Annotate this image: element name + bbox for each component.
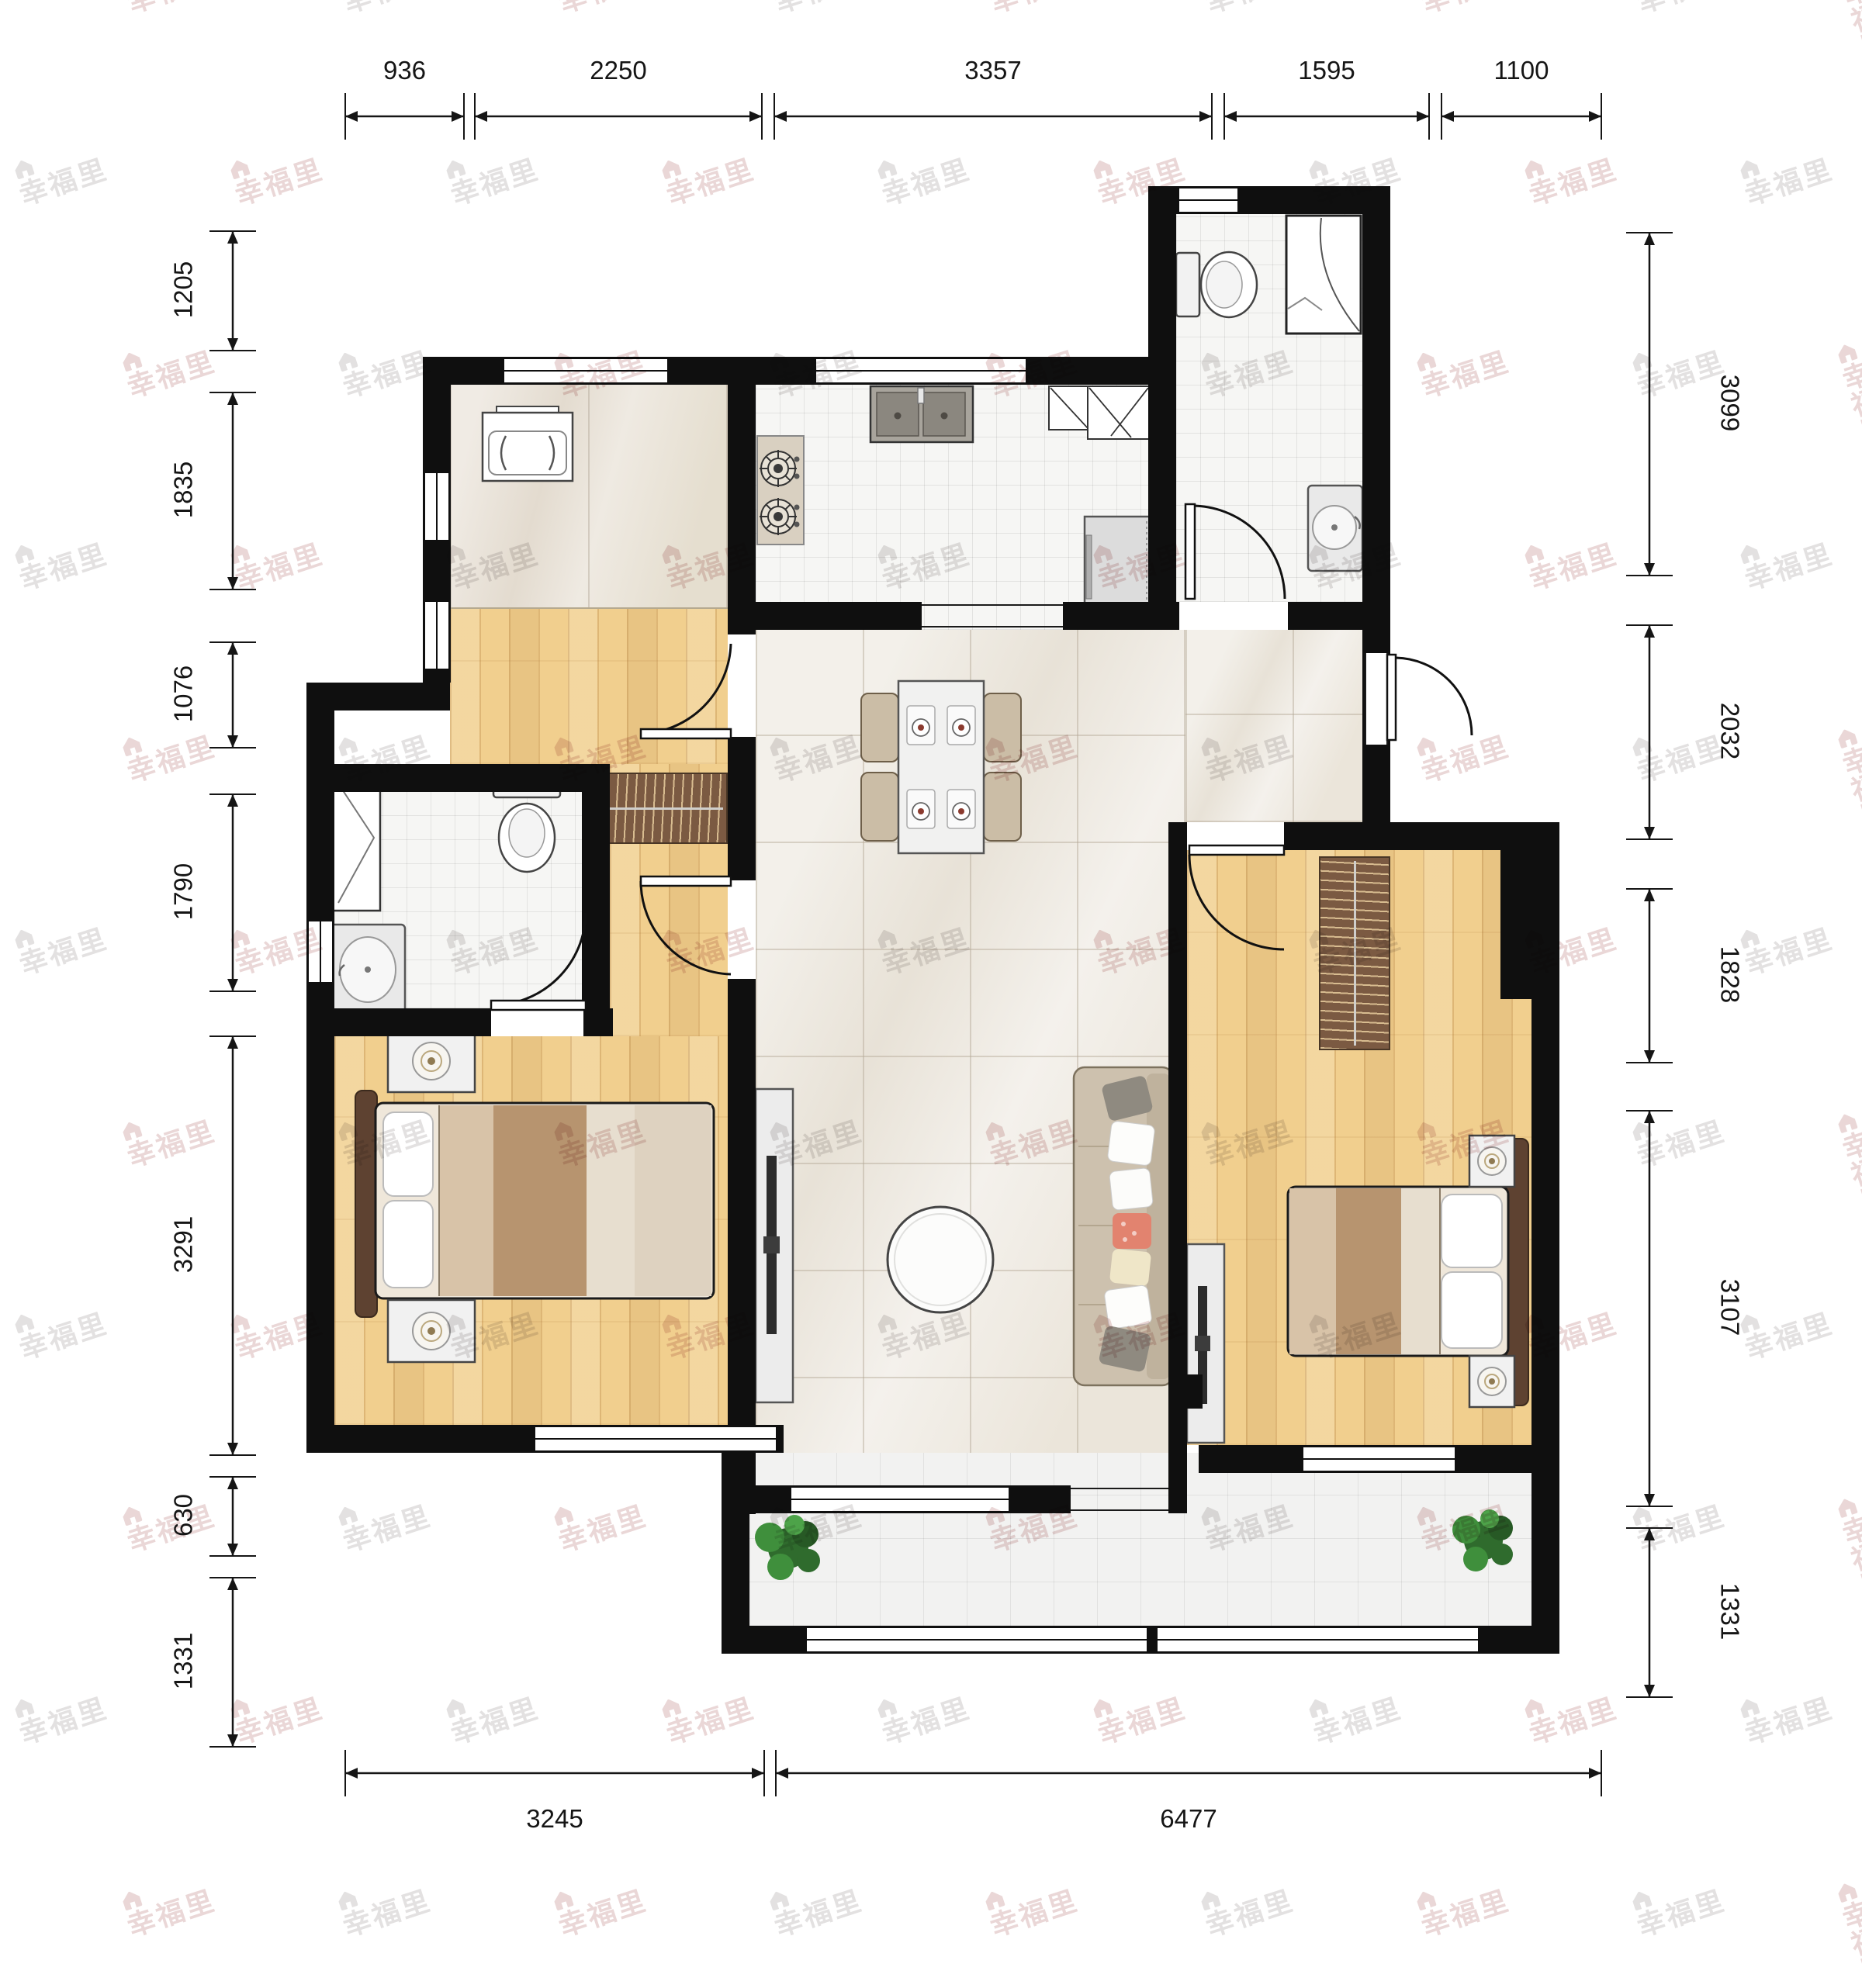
dimension-line	[1623, 886, 1676, 1066]
dimension-label: 3107	[1718, 1246, 1743, 1370]
watermark: 幸福里	[549, 1865, 651, 1941]
dimension-label: 1331	[1718, 1550, 1743, 1674]
watermark-text: 幸福里	[1634, 1886, 1729, 1941]
dimension-line	[1623, 230, 1676, 579]
dimension-label: 630	[171, 1454, 196, 1578]
watermark: 幸福里	[1196, 1865, 1298, 1941]
dimension-line	[342, 1747, 767, 1800]
dimension-line	[206, 228, 259, 354]
dimension-line	[1221, 90, 1432, 143]
watermark: 幸福里	[764, 1865, 867, 1941]
watermark: 幸福里	[980, 1865, 1082, 1941]
dimension-label: 1205	[171, 228, 196, 352]
floorplan-page: { "watermark": { "text": "幸福里", "logo_ic…	[0, 0, 1862, 1862]
dimension-label: 1100	[1459, 57, 1583, 83]
watermark-text: 幸福里	[124, 1886, 219, 1941]
dimension-label: 1595	[1265, 57, 1389, 83]
watermark-text: 幸福里	[771, 1886, 866, 1941]
watermark: 幸福里	[117, 1865, 220, 1941]
watermark-text: 幸福里	[1203, 1886, 1297, 1941]
watermark-text: 幸福里	[1418, 1886, 1513, 1941]
house-logo-icon	[1627, 1885, 1656, 1914]
house-logo-icon	[980, 1885, 1009, 1914]
watermark-text: 幸福里	[1840, 1897, 1862, 1986]
dimension-label: 1790	[171, 830, 196, 954]
dimension-line	[206, 791, 259, 994]
dimension-line	[1438, 90, 1604, 143]
dimension-line	[1623, 622, 1676, 842]
watermark: 幸福里	[1833, 1875, 1862, 1986]
house-logo-icon	[1411, 1885, 1441, 1914]
watermark: 幸福里	[333, 1865, 435, 1941]
watermark: 幸福里	[1627, 1865, 1729, 1941]
dimension-line	[1623, 1108, 1676, 1509]
house-logo-icon	[333, 1885, 362, 1914]
dimension-label: 1828	[1718, 913, 1743, 1037]
watermark: 幸福里	[0, 1865, 3, 1941]
dimension-label: 6477	[1127, 1806, 1251, 1831]
dimension-label: 3099	[1718, 341, 1743, 465]
dimension-line	[771, 90, 1215, 143]
dimension-line	[1623, 1525, 1676, 1700]
dimension-line	[206, 1033, 259, 1458]
dimension-label: 2250	[556, 57, 680, 83]
dimension-line	[206, 389, 259, 593]
dimension-line	[206, 1575, 259, 1750]
dimension-label: 2032	[1718, 669, 1743, 793]
house-logo-icon	[1196, 1885, 1225, 1914]
dimension-line	[342, 90, 467, 143]
watermark-text: 幸福里	[340, 1886, 434, 1941]
dimension-label: 3245	[493, 1806, 617, 1831]
house-logo-icon	[117, 1885, 147, 1914]
dimension-label: 936	[343, 57, 467, 83]
watermark: 幸福里	[1411, 1865, 1514, 1941]
house-logo-icon	[764, 1885, 794, 1914]
dimension-annotations: 9362250335715951100324564771205183510761…	[0, 0, 1862, 1862]
watermark-text: 幸福里	[987, 1886, 1082, 1941]
dimension-line	[206, 1474, 259, 1559]
dimension-label: 1835	[171, 428, 196, 552]
house-logo-icon	[549, 1885, 578, 1914]
watermark-text: 幸福里	[0, 1886, 3, 1941]
dimension-line	[206, 639, 259, 751]
house-logo-icon	[1833, 1877, 1862, 1907]
dimension-label: 1076	[171, 632, 196, 756]
dimension-label: 3291	[171, 1183, 196, 1307]
watermark-text: 幸福里	[555, 1886, 650, 1941]
dimension-line	[472, 90, 765, 143]
dimension-label: 3357	[931, 57, 1055, 83]
dimension-line	[773, 1747, 1604, 1800]
dimension-label: 1331	[171, 1599, 196, 1724]
